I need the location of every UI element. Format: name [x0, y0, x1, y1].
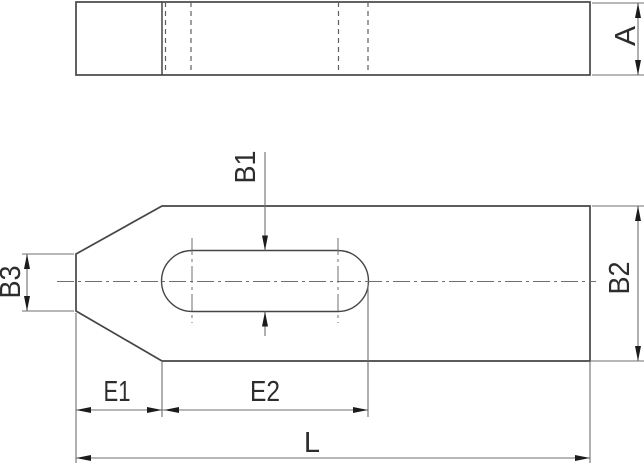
dimension-label-a: A — [610, 25, 642, 46]
dimension-a: A — [592, 3, 644, 75]
dimension-b1: B1 — [230, 151, 268, 337]
arrowhead-up — [635, 3, 641, 18]
arrowhead-up — [262, 312, 268, 327]
dimension-label-e1: E1 — [104, 376, 131, 408]
dimension-l: L — [76, 427, 590, 461]
arrowhead-right — [147, 407, 162, 413]
dimension-b3: B3 — [0, 254, 74, 311]
arrowhead-up — [635, 206, 641, 221]
dimension-label-b3: B3 — [0, 266, 27, 299]
side-view — [76, 2, 590, 75]
arrowhead-down — [262, 236, 268, 251]
arrowhead-right — [353, 407, 368, 413]
side-view-outline — [76, 2, 590, 75]
dimension-label-e2: E2 — [250, 376, 280, 408]
dimension-e1: E1 — [76, 376, 162, 413]
arrowhead-right — [575, 455, 590, 461]
plan-view — [57, 206, 596, 361]
dimension-b2: B2 — [590, 206, 644, 361]
arrowhead-left — [164, 407, 179, 413]
dimension-label-b2: B2 — [604, 262, 636, 295]
drawing-page: A B1 B3 B2 — [0, 0, 644, 464]
dimension-e2: E2 — [162, 376, 368, 413]
dimension-label-l: L — [304, 427, 320, 459]
arrowhead-down — [635, 60, 641, 75]
technical-drawing-canvas: A B1 B3 B2 — [0, 0, 644, 464]
length-extension-lines — [76, 283, 590, 463]
plan-view-outline — [76, 206, 590, 361]
arrowhead-down — [635, 346, 641, 361]
dimension-label-b1: B1 — [230, 151, 262, 184]
arrowhead-left — [76, 407, 91, 413]
arrowhead-left — [76, 455, 91, 461]
